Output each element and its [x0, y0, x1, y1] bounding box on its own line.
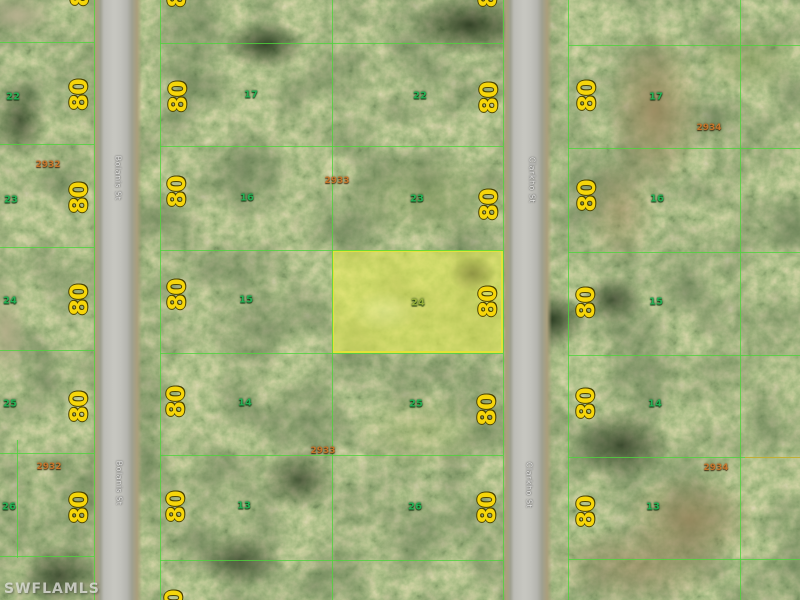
parcel-boundary-line: [160, 250, 503, 251]
parcel-boundary-line: [0, 42, 94, 43]
lot-width-label: 80: [573, 80, 601, 111]
lot-width-label: 80: [473, 492, 501, 523]
parcel-boundary-line: [94, 0, 95, 600]
mls-watermark: SWFLAMLS: [4, 581, 100, 597]
block-number-label: 2933: [324, 176, 349, 186]
lot-number-label: 13: [237, 501, 251, 512]
block-number-label: 2934: [703, 463, 728, 473]
highlighted-lot-number-label: 24: [411, 298, 425, 309]
parcel-boundary-line: [0, 144, 94, 145]
street-name-label: Clarkho St: [525, 462, 534, 508]
parcel-boundary-line: [568, 252, 800, 253]
lot-number-label: 15: [239, 295, 253, 306]
street-name-label: Bolanis St: [114, 156, 123, 201]
street-name-label: Clarkho St: [528, 157, 537, 203]
parcel-boundary-line: [568, 355, 800, 356]
block-number-label: 2932: [35, 160, 60, 170]
parcel-boundary-line: [160, 146, 503, 147]
parcel-boundary-line: [160, 353, 503, 354]
lot-width-label: 80: [475, 189, 503, 220]
lot-width-label: 80: [162, 491, 190, 522]
parcel-boundary-line: [332, 0, 333, 600]
lot-number-label: 22: [413, 91, 427, 102]
lot-number-label: 13: [646, 502, 660, 513]
lot-width-label: 80: [160, 590, 188, 600]
lot-number-label: 26: [408, 502, 422, 513]
parcel-boundary-line: [503, 0, 504, 600]
lot-number-label: 26: [2, 502, 16, 513]
lot-width-label: 80: [163, 0, 191, 8]
lot-width-label: 80: [65, 391, 93, 422]
parcel-boundary-line: [160, 43, 503, 44]
block-number-label: 2934: [696, 123, 721, 133]
lot-number-label: 14: [238, 398, 252, 409]
lot-number-label: 22: [6, 92, 20, 103]
lot-number-label: 24: [3, 296, 17, 307]
parcel-boundary-line: [568, 148, 800, 149]
lot-width-label: 80: [474, 0, 502, 8]
lot-number-label: 16: [240, 193, 254, 204]
lot-width-label: 80: [163, 279, 191, 310]
lot-width-label: 80: [162, 386, 190, 417]
lot-number-label: 23: [410, 194, 424, 205]
parcel-boundary-line: [568, 0, 569, 600]
lot-number-label: 23: [4, 195, 18, 206]
road-left: [92, 0, 142, 600]
parcel-boundary-line: [568, 45, 800, 46]
road-right: [502, 0, 552, 600]
lot-width-label: 80: [572, 496, 600, 527]
block-number-label: 2933: [310, 446, 335, 456]
lot-width-label: 80: [473, 394, 501, 425]
parcel-boundary-line: [160, 560, 503, 561]
lot-width-label: 80: [572, 388, 600, 419]
lot-width-label: 80: [164, 81, 192, 112]
lot-width-label: 80: [65, 182, 93, 213]
lot-number-label: 17: [649, 92, 663, 103]
lot-number-label: 15: [649, 297, 663, 308]
parcel-boundary-line: [17, 440, 18, 558]
aerial-parcel-map: SWFLAMLS 2422232425261716151413222325261…: [0, 0, 800, 600]
parcel-boundary-line: [0, 453, 94, 454]
lot-width-label: 80: [573, 180, 601, 211]
lot-width-label: 80: [572, 287, 600, 318]
lot-width-label: 80: [163, 176, 191, 207]
parcel-boundary-line: [0, 556, 94, 557]
lot-number-label: 25: [409, 399, 423, 410]
parcel-boundary-line: [740, 0, 741, 600]
parcel-boundary-line: [568, 559, 800, 560]
lot-number-label: 14: [648, 399, 662, 410]
lot-number-label: 16: [650, 194, 664, 205]
parcel-boundary-line: [160, 0, 161, 600]
parcel-boundary-line: [0, 247, 94, 248]
parcel-boundary-line: [0, 350, 94, 351]
parcel-boundary-line: [745, 457, 800, 458]
lot-number-label: 17: [244, 90, 258, 101]
lot-width-label: 80: [66, 0, 94, 7]
lot-width-label: 80: [65, 492, 93, 523]
lot-number-label: 25: [3, 399, 17, 410]
lot-width-label: 80: [65, 79, 93, 110]
lot-width-label: 80: [474, 286, 502, 317]
street-name-label: Bolanis St: [115, 461, 124, 506]
block-number-label: 2932: [36, 462, 61, 472]
lot-width-label: 80: [65, 284, 93, 315]
lot-width-label: 80: [475, 82, 503, 113]
